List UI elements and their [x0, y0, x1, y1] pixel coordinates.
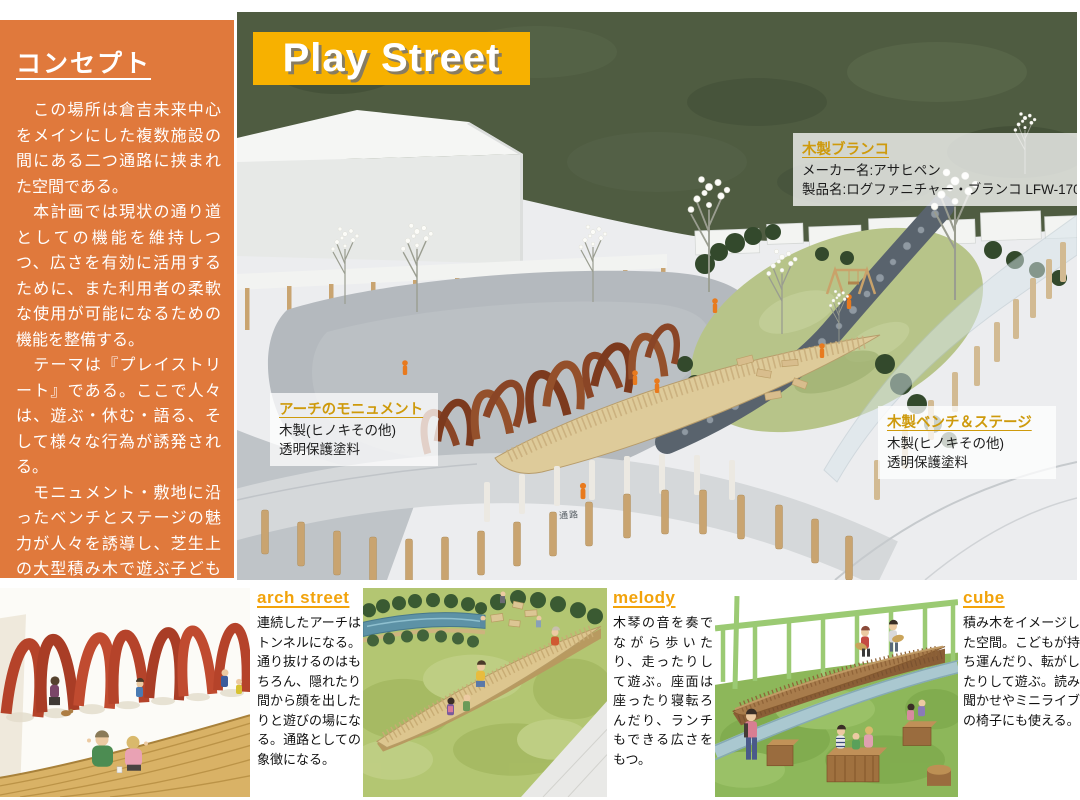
arch-street-illustration — [0, 588, 250, 797]
annotation-bench-line: 木製(ヒノキその他) — [887, 434, 1047, 453]
model-photo: Play Street 木製ブランコ メーカー名:アサヒペン 製品名:ログファニ… — [237, 12, 1077, 580]
panel-cube-title: cube — [963, 588, 1080, 608]
annotation-arch-line: 透明保護塗料 — [279, 440, 429, 459]
panel-melody-title: melody — [613, 588, 713, 608]
presentation-board: コンセプト この場所は倉吉未来中心をメインにした複数施設の間にある二つ通路に挟ま… — [0, 0, 1080, 800]
annotation-swing: 木製ブランコ メーカー名:アサヒペン 製品名:ログファニチャー・ブランコ LFW… — [793, 133, 1077, 206]
panel-cube-text: 積み木をイメージした空間。こどもが持ち運んだり、転がしたりして遊ぶ。読み聞かせや… — [963, 613, 1080, 730]
panel-arch-street-title: arch street — [257, 588, 361, 608]
annotation-bench-line: 透明保護塗料 — [887, 453, 1047, 472]
panel-cube: cube 積み木をイメージした空間。こどもが持ち運んだり、転がしたりして遊ぶ。読… — [963, 588, 1080, 730]
model-photo-illustration — [237, 12, 1077, 580]
annotation-bench-title: 木製ベンチ＆ステージ — [887, 411, 1047, 432]
annotation-swing-title: 木製ブランコ — [802, 138, 1077, 159]
concept-paragraph: 本計画では現状の通り道としての機能を維持しつつ、広さを有効に活用するために、また… — [16, 200, 221, 353]
annotation-swing-line: メーカー名:アサヒペン — [802, 161, 1077, 180]
cube-illustration — [715, 588, 958, 797]
concept-title: コンセプト — [16, 44, 221, 80]
annotation-bench: 木製ベンチ＆ステージ 木製(ヒノキその他) 透明保護塗料 — [878, 406, 1056, 479]
panel-melody-text: 木琴の音を奏でながら歩いたり、走ったりして遊ぶ。座面は座ったり寝転ろんだり、ラン… — [613, 613, 713, 769]
page-title: Play Street — [253, 32, 530, 85]
panel-arch-street-text: 連続したアーチはトンネルになる。通り抜けるのはもちろん、隠れたり間から顔を出した… — [257, 613, 361, 769]
annotation-arch-title: アーチのモニュメント — [279, 398, 429, 419]
annotation-arch: アーチのモニュメント 木製(ヒノキその他) 透明保護塗料 — [270, 393, 438, 466]
concept-paragraph: この場所は倉吉未来中心をメインにした複数施設の間にある二つ通路に挟まれた空間であ… — [16, 98, 221, 200]
passage-label: 通路 — [559, 507, 580, 521]
annotation-arch-line: 木製(ヒノキその他) — [279, 421, 429, 440]
melody-illustration — [363, 588, 607, 797]
panel-melody: melody 木琴の音を奏でながら歩いたり、走ったりして遊ぶ。座面は座ったり寝転… — [613, 588, 713, 769]
concept-paragraph: テーマは『プレイストリート』である。ここで人々は、遊ぶ・休む・語る、そして様々な… — [16, 353, 221, 481]
panel-arch-street: arch street 連続したアーチはトンネルになる。通り抜けるのはもちろん、… — [257, 588, 361, 769]
annotation-swing-line: 製品名:ログファニチャー・ブランコ LFW-170 — [802, 180, 1077, 199]
concept-sidebar: コンセプト この場所は倉吉未来中心をメインにした複数施設の間にある二つ通路に挟ま… — [0, 20, 234, 578]
